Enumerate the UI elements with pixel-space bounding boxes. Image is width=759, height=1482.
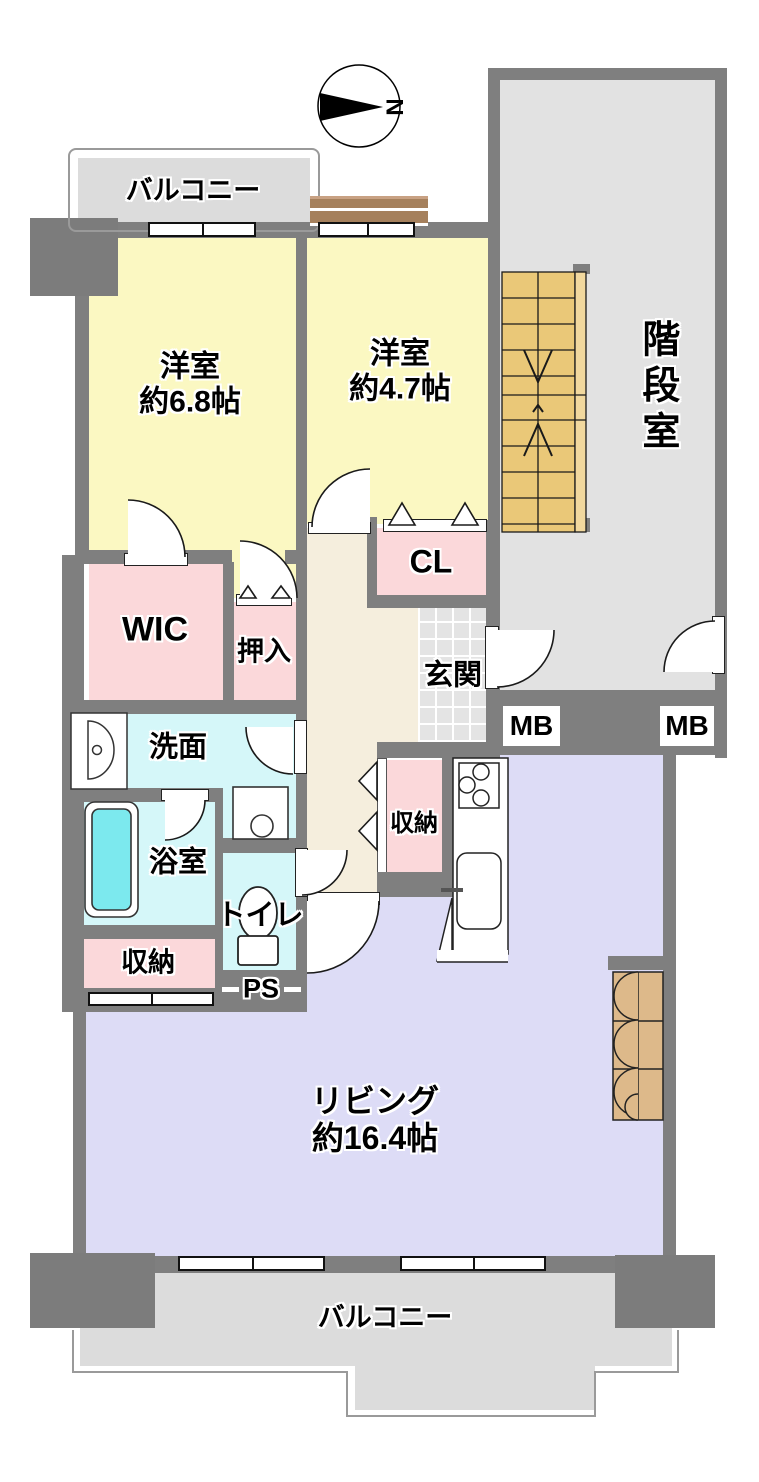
sliding-door-storage-bath bbox=[88, 992, 214, 1006]
window-living-right bbox=[400, 1256, 546, 1271]
bedroom1-size: 約6.8帖 bbox=[139, 385, 241, 420]
door-leaf-stairwell bbox=[712, 616, 725, 674]
wall-stair-stub-top bbox=[573, 264, 590, 274]
living-name: リビング bbox=[311, 1083, 439, 1120]
hall-floor-1 bbox=[307, 528, 367, 742]
ps-dash-left bbox=[222, 987, 239, 992]
floor-plan: MB MB bbox=[0, 0, 759, 1482]
label-stairwell: 階段室 bbox=[634, 319, 678, 457]
wall-bottom-living bbox=[73, 1256, 675, 1273]
hall-floor-2 bbox=[367, 608, 418, 742]
pillar-bottom-right bbox=[615, 1255, 715, 1328]
door-leaf-washroom bbox=[294, 720, 307, 774]
bedroom1-name: 洋室 bbox=[139, 351, 241, 386]
ps-dash-right bbox=[284, 987, 301, 992]
label-bedroom1: 洋室 約6.8帖 bbox=[139, 351, 241, 420]
window-bedroom2 bbox=[318, 222, 415, 237]
door-leaf-toilet bbox=[295, 848, 308, 897]
door-leaf-bedroom2 bbox=[308, 522, 371, 534]
wall-left-lower bbox=[73, 1008, 86, 1258]
hall-floor-3 bbox=[307, 742, 377, 895]
label-living: リビング 約16.4帖 bbox=[311, 1083, 439, 1157]
door-leaf-living bbox=[307, 892, 380, 905]
label-storage-bath: 収納 bbox=[121, 947, 175, 978]
meter-box-left: MB bbox=[503, 706, 560, 746]
living-floor-b bbox=[307, 895, 663, 1015]
wall-kitchen-east bbox=[442, 755, 453, 897]
stairwell-floor bbox=[500, 80, 715, 690]
balcony-bottom-ext-floor bbox=[355, 1366, 595, 1410]
wall-kitchen-south bbox=[377, 872, 443, 897]
wall-left-mid bbox=[62, 555, 84, 1010]
compass-icon: N bbox=[318, 65, 408, 147]
label-wic: WIC bbox=[122, 610, 188, 649]
label-storage-kitchen: 収納 bbox=[390, 810, 438, 838]
door-leaf-bathroom bbox=[161, 789, 209, 801]
door-leaf-wic bbox=[124, 553, 188, 566]
closet-front-oshiire bbox=[236, 594, 292, 606]
bedroom2-size: 約4.7帖 bbox=[349, 372, 451, 407]
label-balcony-bottom: バルコニー bbox=[318, 1302, 452, 1333]
label-ps: PS bbox=[243, 973, 279, 1004]
meter-box-left-label: MB bbox=[510, 710, 554, 742]
storage-kitchen-bar bbox=[377, 758, 387, 874]
label-bedroom2: 洋室 約4.7帖 bbox=[349, 338, 451, 407]
meter-box-right: MB bbox=[660, 706, 714, 746]
bedroom2-name: 洋室 bbox=[349, 338, 451, 373]
window-living-left bbox=[178, 1256, 325, 1271]
wall-right-living bbox=[663, 755, 676, 1257]
closet-front-cl bbox=[383, 519, 487, 532]
wall-wic-oshiire bbox=[223, 562, 234, 702]
door-leaf-entrance bbox=[485, 626, 499, 689]
wall-stair-stub-bottom bbox=[566, 518, 590, 532]
label-genkan: 玄関 bbox=[424, 659, 482, 692]
wall-nook-toilet bbox=[223, 838, 296, 853]
wall-living-top-left bbox=[377, 742, 500, 758]
living-floor-c bbox=[453, 755, 663, 897]
wall-stairwell-left bbox=[488, 68, 500, 538]
wall-wic-south bbox=[62, 700, 307, 714]
window-bedroom1 bbox=[148, 222, 256, 237]
wall-stairwell-top bbox=[488, 68, 727, 80]
meter-box-right-label: MB bbox=[665, 710, 709, 742]
label-balcony-top: バルコニー bbox=[126, 175, 260, 206]
washroom-nook-floor bbox=[223, 714, 296, 838]
wall-bedroom1-stub bbox=[285, 550, 307, 564]
pillar-bottom-left bbox=[30, 1253, 155, 1328]
label-oshiire: 押入 bbox=[237, 636, 291, 667]
wall-closet-stub bbox=[608, 956, 676, 970]
label-washroom: 洗面 bbox=[149, 731, 207, 764]
living-floor-d bbox=[377, 897, 443, 1015]
living-size: 約16.4帖 bbox=[311, 1120, 439, 1157]
label-cl: CL bbox=[410, 544, 453, 581]
label-bathroom: 浴室 bbox=[149, 846, 207, 879]
wall-cl-south bbox=[367, 595, 500, 608]
compass-n-label: N bbox=[381, 98, 408, 115]
wall-bath-south bbox=[62, 925, 215, 939]
label-toilet: トイレ bbox=[216, 899, 303, 932]
